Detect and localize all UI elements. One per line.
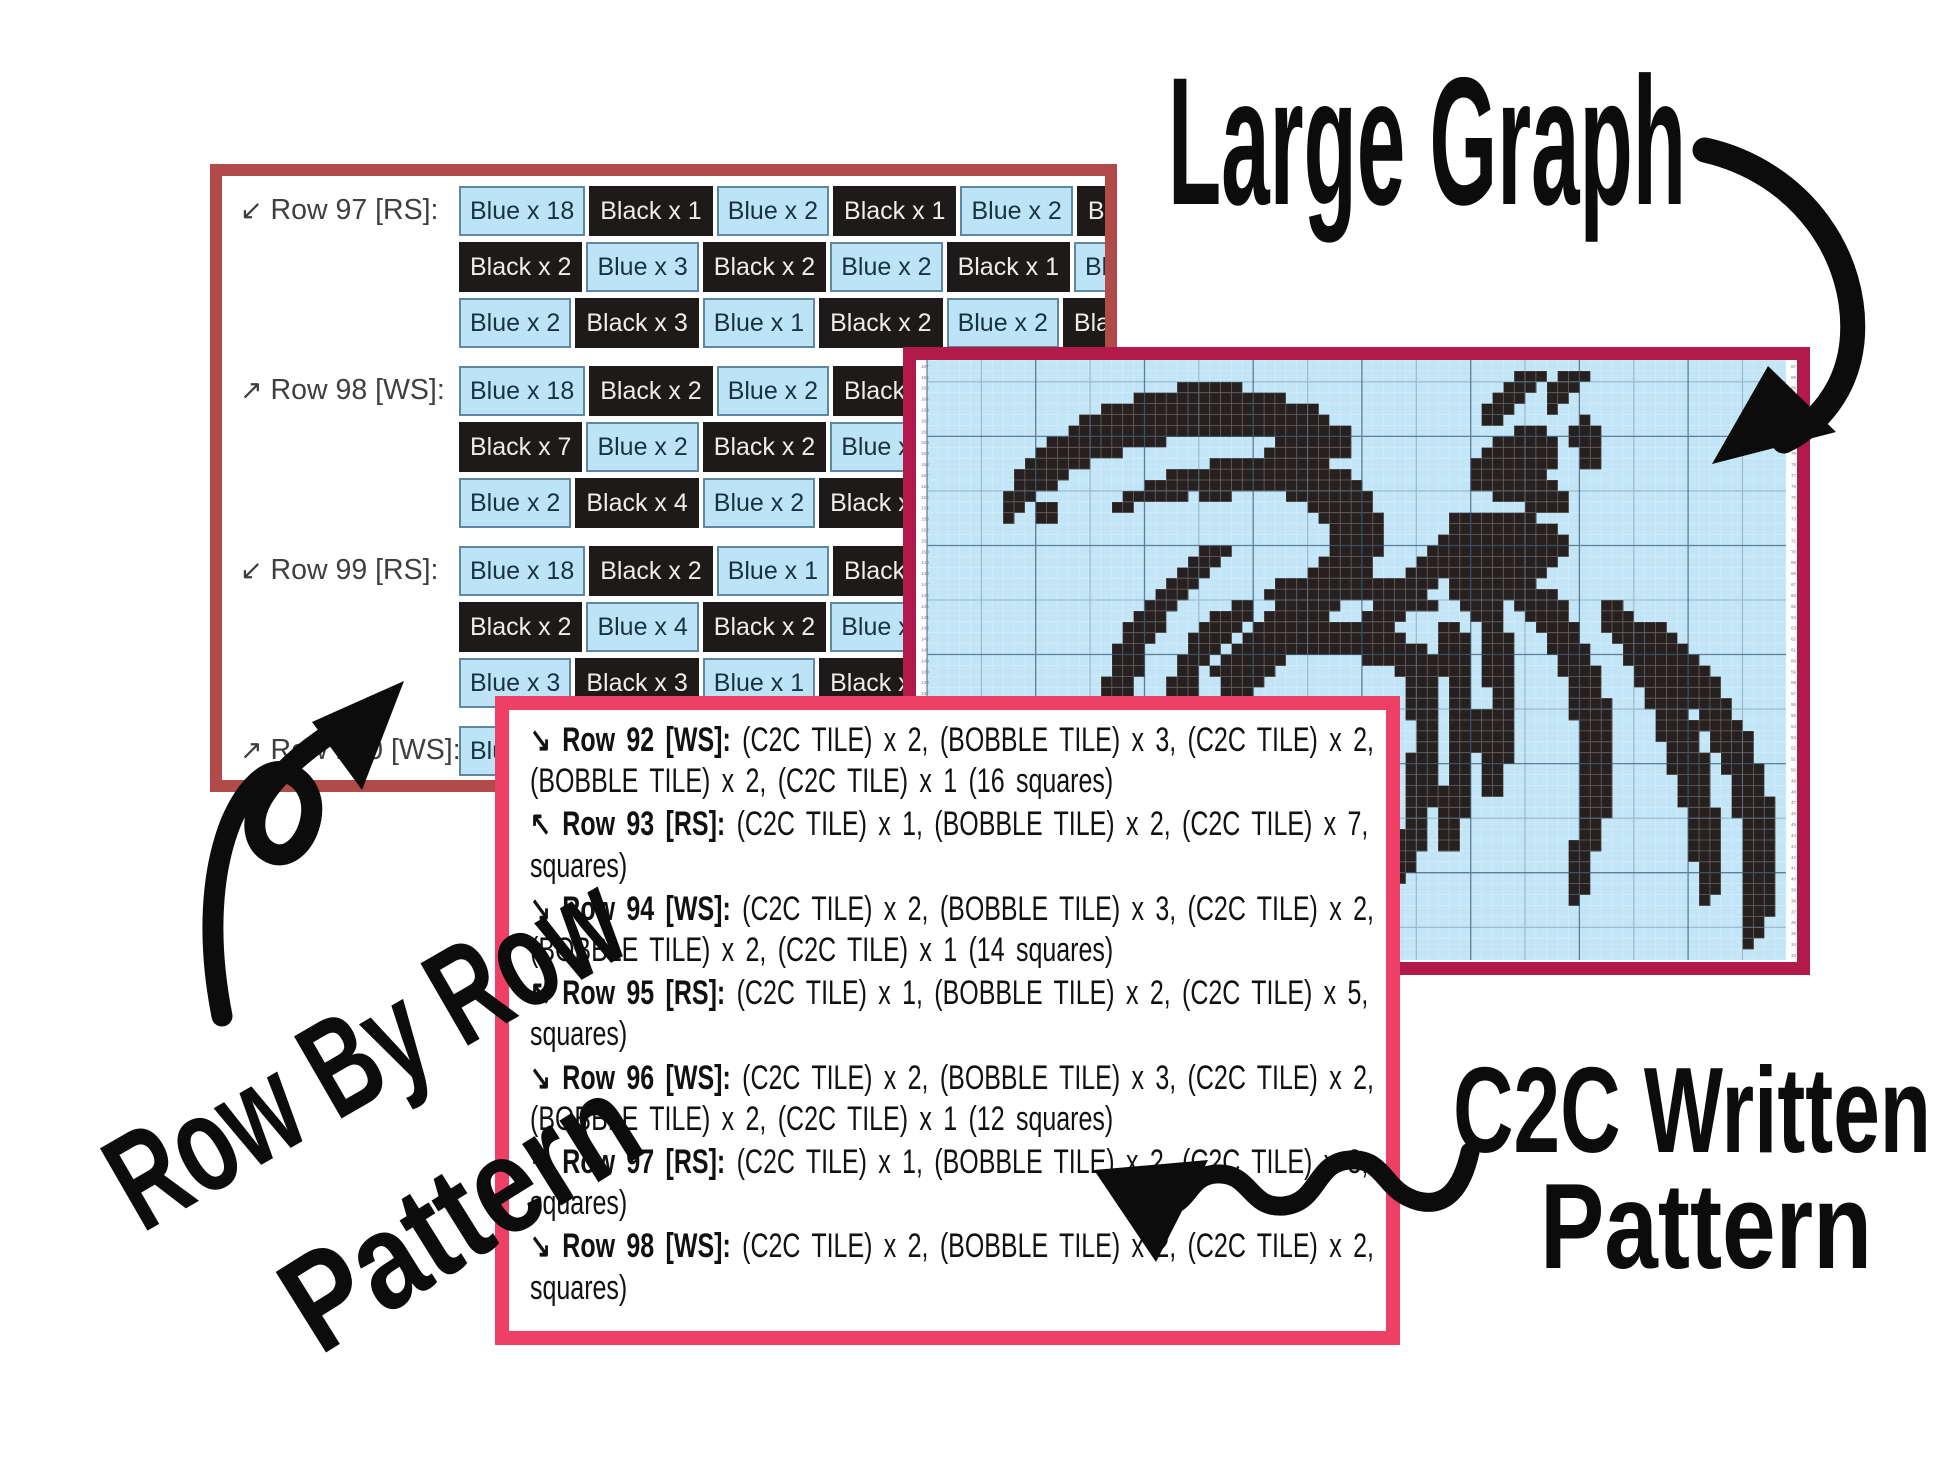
svg-text:82: 82	[1791, 418, 1797, 423]
svg-text:156: 156	[921, 484, 929, 489]
svg-text:143: 143	[921, 626, 929, 631]
svg-text:87: 87	[1791, 364, 1797, 369]
svg-text:68: 68	[1791, 571, 1797, 576]
svg-text:149: 149	[921, 560, 929, 565]
svg-text:79: 79	[1791, 451, 1797, 456]
svg-text:145: 145	[921, 604, 929, 609]
svg-text:41: 41	[1791, 866, 1797, 871]
svg-text:34: 34	[1791, 942, 1797, 947]
svg-text:42: 42	[1791, 855, 1797, 860]
svg-text:140: 140	[921, 658, 929, 663]
svg-text:70: 70	[1791, 549, 1797, 554]
svg-text:59: 59	[1791, 669, 1797, 674]
svg-text:64: 64	[1791, 615, 1797, 620]
svg-text:36: 36	[1791, 920, 1797, 925]
svg-text:49: 49	[1791, 778, 1797, 783]
svg-text:46: 46	[1791, 811, 1797, 816]
svg-text:33: 33	[1791, 953, 1797, 958]
svg-text:38: 38	[1791, 898, 1797, 903]
svg-text:57: 57	[1791, 691, 1797, 696]
svg-text:78: 78	[1791, 462, 1797, 467]
svg-text:63: 63	[1791, 626, 1797, 631]
svg-text:81: 81	[1791, 429, 1797, 434]
svg-text:35: 35	[1791, 931, 1797, 936]
svg-text:39: 39	[1791, 888, 1797, 893]
svg-text:58: 58	[1791, 680, 1797, 685]
svg-text:51: 51	[1791, 757, 1797, 762]
svg-text:66: 66	[1791, 593, 1797, 598]
svg-text:80: 80	[1791, 440, 1797, 445]
svg-text:84: 84	[1791, 397, 1797, 402]
svg-text:147: 147	[921, 582, 929, 587]
svg-text:163: 163	[921, 408, 929, 413]
svg-text:77: 77	[1791, 473, 1797, 478]
svg-text:83: 83	[1791, 408, 1797, 413]
svg-text:48: 48	[1791, 789, 1797, 794]
svg-text:43: 43	[1791, 844, 1797, 849]
svg-text:160: 160	[921, 440, 929, 445]
svg-text:73: 73	[1791, 517, 1797, 522]
svg-text:62: 62	[1791, 637, 1797, 642]
svg-text:146: 146	[921, 593, 929, 598]
svg-text:158: 158	[921, 462, 929, 467]
svg-text:C2C Written: C2C Written	[1453, 1042, 1931, 1178]
svg-text:85: 85	[1791, 386, 1797, 391]
svg-text:67: 67	[1791, 582, 1797, 587]
svg-text:148: 148	[921, 571, 929, 576]
svg-text:71: 71	[1791, 538, 1797, 543]
svg-text:53: 53	[1791, 735, 1797, 740]
svg-text:155: 155	[921, 495, 929, 500]
svg-text:164: 164	[921, 397, 929, 402]
svg-text:76: 76	[1791, 484, 1797, 489]
svg-text:40: 40	[1791, 877, 1797, 882]
svg-text:56: 56	[1791, 702, 1797, 707]
svg-text:60: 60	[1791, 658, 1797, 663]
svg-text:75: 75	[1791, 495, 1797, 500]
svg-text:37: 37	[1791, 909, 1797, 914]
svg-text:86: 86	[1791, 375, 1797, 380]
svg-text:152: 152	[921, 528, 929, 533]
svg-text:154: 154	[921, 506, 929, 511]
svg-text:142: 142	[921, 637, 929, 642]
svg-text:157: 157	[921, 473, 929, 478]
svg-text:47: 47	[1791, 800, 1797, 805]
svg-text:150: 150	[921, 549, 929, 554]
svg-text:61: 61	[1791, 648, 1797, 653]
svg-text:55: 55	[1791, 713, 1797, 718]
svg-text:50: 50	[1791, 768, 1797, 773]
svg-text:72: 72	[1791, 528, 1797, 533]
svg-text:159: 159	[921, 451, 929, 456]
svg-text:Large Graph: Large Graph	[1168, 39, 1686, 243]
svg-text:54: 54	[1791, 724, 1797, 729]
svg-text:144: 144	[921, 615, 929, 620]
svg-text:165: 165	[921, 386, 929, 391]
svg-text:65: 65	[1791, 604, 1797, 609]
svg-text:Pattern: Pattern	[1540, 1158, 1872, 1294]
svg-text:151: 151	[921, 538, 929, 543]
svg-text:141: 141	[921, 648, 929, 653]
svg-text:74: 74	[1791, 506, 1797, 511]
svg-text:44: 44	[1791, 833, 1797, 838]
svg-text:166: 166	[921, 375, 929, 380]
svg-text:167: 167	[921, 364, 929, 369]
svg-text:153: 153	[921, 517, 929, 522]
svg-text:138: 138	[921, 680, 929, 685]
svg-text:45: 45	[1791, 822, 1797, 827]
svg-text:69: 69	[1791, 560, 1797, 565]
svg-text:162: 162	[921, 418, 929, 423]
svg-text:139: 139	[921, 669, 929, 674]
svg-text:52: 52	[1791, 746, 1797, 751]
svg-text:161: 161	[921, 429, 929, 434]
